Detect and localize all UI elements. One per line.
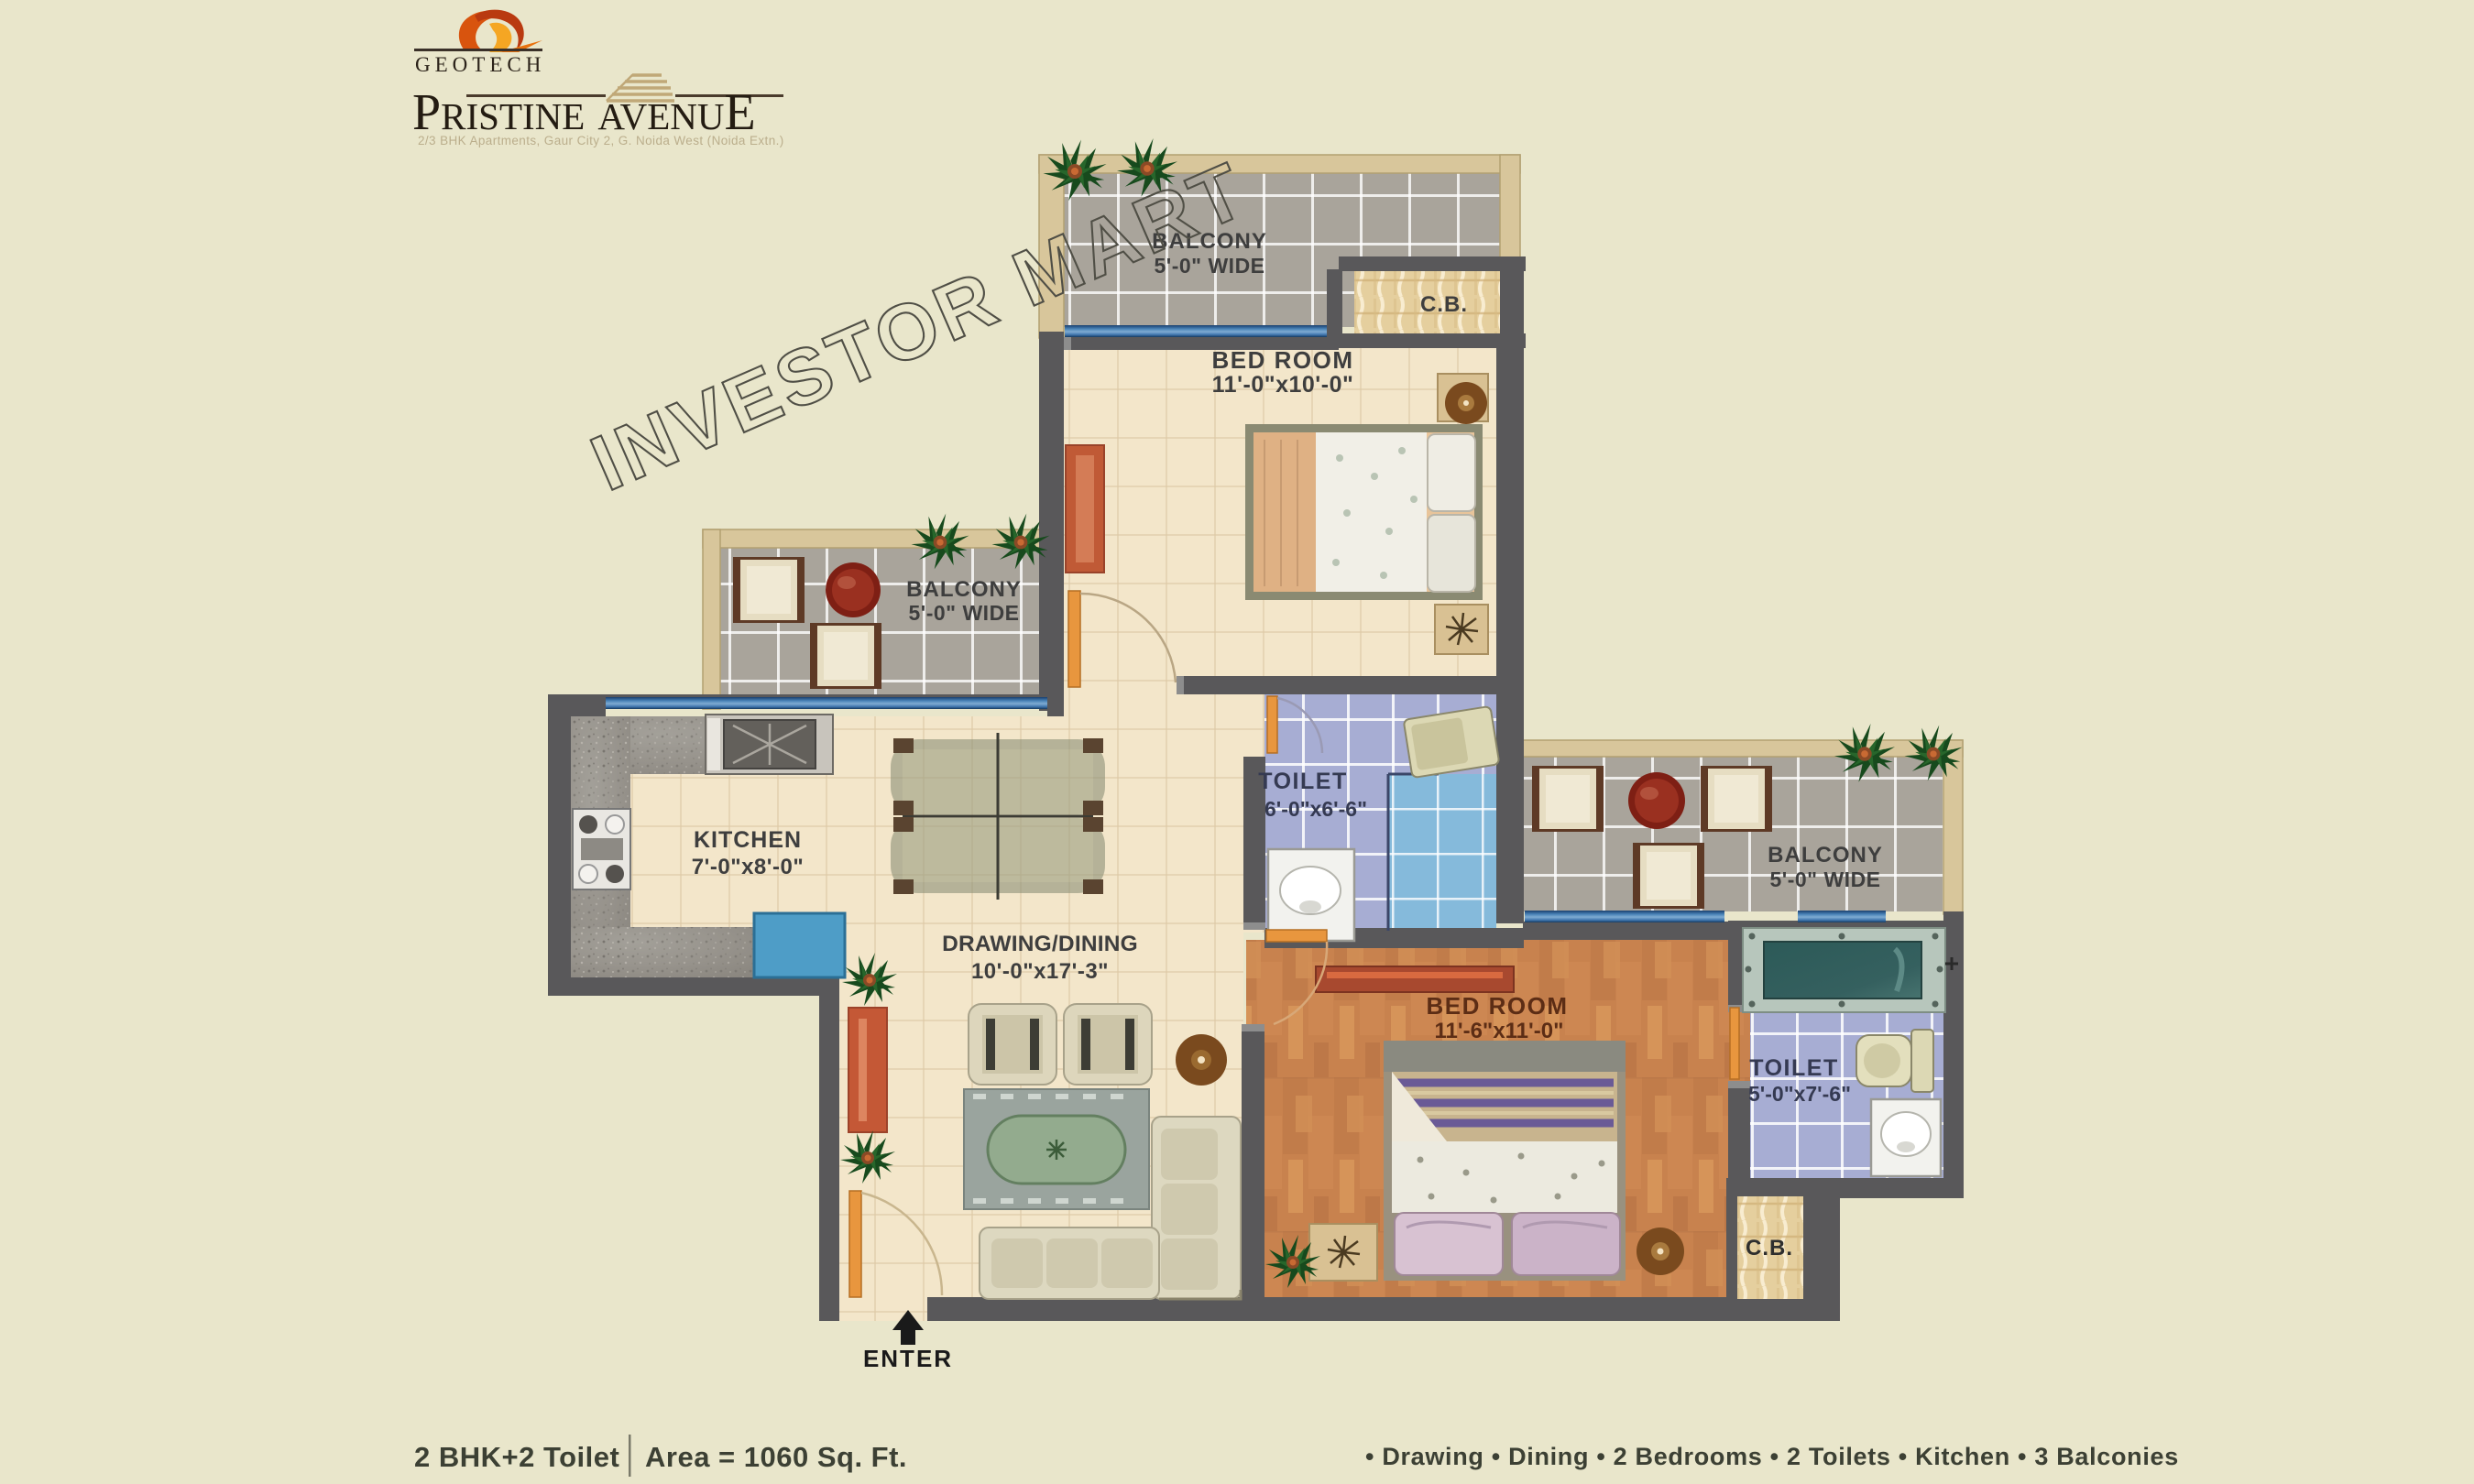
svg-text:Area = 1060 Sq. Ft.: Area = 1060 Sq. Ft. [645, 1441, 907, 1473]
svg-text:KITCHEN: KITCHEN [694, 827, 802, 853]
svg-text:BALCONY: BALCONY [1768, 843, 1883, 867]
svg-text:2 BHK+2 Toilet: 2 BHK+2 Toilet [414, 1441, 619, 1473]
svg-text:• Drawing • Dining • 2 Bedroom: • Drawing • Dining • 2 Bedrooms • 2 Toil… [1365, 1443, 2179, 1470]
svg-text:5'-0"x7'-6": 5'-0"x7'-6" [1748, 1082, 1851, 1106]
svg-text:2/3 BHK Apartments, Gaur City: 2/3 BHK Apartments, Gaur City 2, G. Noid… [418, 134, 784, 147]
svg-text:BED ROOM: BED ROOM [1212, 346, 1354, 374]
svg-text:DRAWING/DINING: DRAWING/DINING [942, 932, 1138, 956]
svg-text:TOILET: TOILET [1749, 1055, 1838, 1081]
svg-text:7'-0"x8'-0": 7'-0"x8'-0" [692, 855, 804, 879]
svg-text:BED ROOM: BED ROOM [1427, 992, 1569, 1020]
svg-text:6'-0"x6'-6": 6'-0"x6'-6" [1264, 797, 1367, 821]
svg-text:5'-0" WIDE: 5'-0" WIDE [1769, 867, 1880, 891]
svg-text:ENTER: ENTER [863, 1345, 953, 1372]
svg-text:GEOTECH: GEOTECH [415, 53, 545, 76]
svg-text:11'-0"x10'-0": 11'-0"x10'-0" [1212, 372, 1354, 398]
svg-text:BALCONY: BALCONY [906, 577, 1022, 602]
svg-text:5'-0" WIDE: 5'-0" WIDE [908, 601, 1019, 625]
svg-text:C.B.: C.B. [1420, 292, 1468, 317]
svg-text:TOILET: TOILET [1258, 769, 1347, 794]
svg-text:C.B.: C.B. [1746, 1236, 1793, 1260]
svg-text:11'-6"x11'-0": 11'-6"x11'-0" [1435, 1019, 1564, 1043]
svg-text:PRISTINE AVENUE: PRISTINE AVENUE [412, 84, 756, 141]
svg-text:10'-0"x17'-3": 10'-0"x17'-3" [971, 959, 1109, 984]
